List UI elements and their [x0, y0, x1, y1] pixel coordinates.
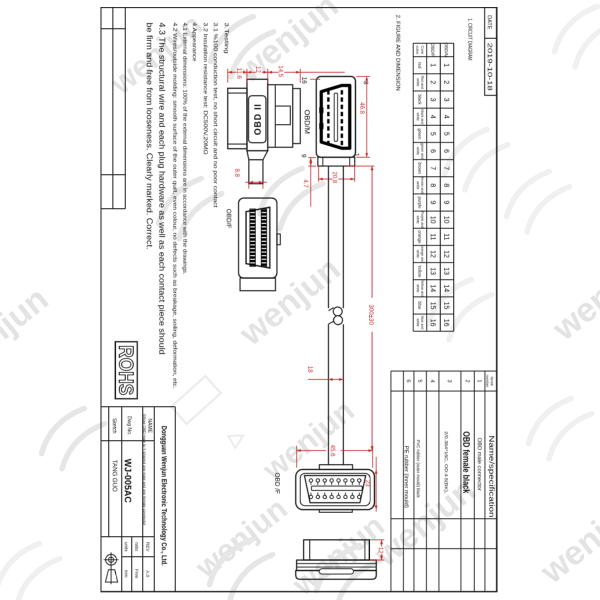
svg-text:OBD/F: OBD/F	[430, 43, 435, 57]
svg-text:1. CIRCUIT DIAGRAM: 1. CIRCUIT DIAGRAM	[466, 19, 472, 61]
svg-text:TANG GUO: TANG GUO	[110, 460, 116, 492]
svg-text:Dongguan Wenjun Electronic Tec: Dongguan Wenjun Electronic Technology Co…	[160, 426, 169, 566]
svg-text:Yellow and: Yellow and	[420, 280, 424, 297]
svg-text:13: 13	[429, 268, 436, 276]
svg-text:wenjun: wenjun	[545, 245, 600, 349]
svg-text:Sketch: Sketch	[111, 418, 117, 434]
svg-text:1: 1	[442, 64, 449, 68]
svg-text:orange: orange	[417, 230, 422, 244]
svg-text:3: 3	[442, 98, 449, 102]
svg-text:5: 5	[416, 380, 422, 383]
svg-text:white: white	[416, 319, 420, 327]
svg-text:8.8: 8.8	[233, 169, 239, 178]
svg-text:OBD/M: OBD/M	[303, 110, 312, 134]
svg-text:NAME: NAME	[146, 419, 152, 434]
svg-text:15: 15	[429, 302, 436, 310]
svg-text:300±30: 300±30	[367, 305, 374, 326]
svg-text:Purple and: Purple and	[420, 211, 424, 228]
svg-text:6: 6	[429, 149, 436, 153]
svg-text:ROHS: ROHS	[114, 346, 136, 396]
svg-text:9: 9	[300, 154, 307, 158]
svg-text:blue: blue	[417, 302, 422, 311]
svg-text:5: 5	[429, 132, 436, 136]
svg-text:20.8: 20.8	[330, 172, 336, 184]
svg-text:PE rubber (inner mould): PE rubber (inner mould)	[403, 446, 409, 508]
svg-text:orange and: orange and	[420, 245, 424, 263]
svg-text:4: 4	[428, 380, 434, 383]
svg-text:green: green	[417, 129, 422, 141]
svg-text:8: 8	[442, 184, 449, 188]
svg-text:red: red	[417, 62, 422, 69]
svg-text:14: 14	[442, 285, 449, 293]
svg-text:15: 15	[442, 302, 449, 310]
svg-text:5: 5	[442, 132, 449, 136]
svg-text:10: 10	[429, 216, 436, 224]
svg-text:4: 4	[429, 115, 436, 119]
svg-text:OBD female black: OBD female black	[461, 432, 471, 495]
svg-text:OBD /F: OBD /F	[273, 473, 280, 494]
svg-text:white: white	[416, 182, 420, 190]
svg-text:color: color	[415, 46, 420, 55]
svg-text:3.2 Insulation resistance test: 3.2 Insulation resistance test: DC500V,2…	[202, 23, 208, 155]
svg-text:1: 1	[475, 380, 481, 383]
svg-text:ratio: ratio	[134, 543, 139, 552]
svg-text:DATE: DATE	[486, 15, 492, 30]
svg-text:wenjun: wenjun	[0, 280, 56, 384]
svg-text:12: 12	[442, 250, 449, 258]
svg-text:Serial: Serial	[490, 377, 494, 387]
svg-text:12: 12	[376, 547, 382, 554]
svg-text:PVC rubber (outer mould) black: PVC rubber (outer mould) black	[416, 440, 421, 499]
svg-text:Core: Core	[420, 46, 425, 55]
svg-text:purple: purple	[417, 197, 422, 210]
svg-text:16: 16	[429, 319, 436, 327]
svg-text:wenjun: wenjun	[533, 488, 600, 592]
svg-text:white: white	[416, 79, 420, 87]
svg-text:units: units	[124, 542, 129, 552]
svg-text:mm: mm	[124, 570, 129, 578]
svg-text:9: 9	[429, 201, 436, 205]
svg-text:3.1 %100 conduction test, no s: 3.1 %100 conduction test, no short circu…	[212, 23, 218, 209]
svg-text:green and: green and	[420, 143, 424, 159]
svg-text:white: white	[416, 250, 420, 258]
svg-text:2/0.364*16C, OD:4.5(BK),: 2/0.364*16C, OD:4.5(BK),	[444, 432, 449, 494]
svg-text:6: 6	[442, 149, 449, 153]
svg-text:REV: REV	[145, 542, 150, 552]
svg-text:OBD/F: OBD/F	[225, 209, 232, 229]
svg-text:8: 8	[362, 81, 369, 85]
svg-text:4.1 External dimensions: 100%: 4.1 External dimensions: 100% of the ext…	[181, 23, 187, 275]
svg-text:A.0: A.0	[145, 571, 150, 578]
svg-text:OBD/M: OBD/M	[444, 43, 449, 58]
svg-text:7: 7	[442, 166, 449, 170]
svg-text:18: 18	[306, 366, 312, 373]
svg-text:4.Appearance: 4.Appearance	[191, 23, 197, 62]
svg-text:blue and: blue and	[420, 316, 424, 329]
svg-text:3.Testing: 3.Testing	[223, 23, 229, 54]
svg-text:white: white	[416, 284, 420, 292]
svg-text:11: 11	[429, 233, 436, 240]
svg-text:7: 7	[429, 166, 436, 170]
svg-text:2: 2	[442, 81, 449, 85]
svg-text:Dwg No.: Dwg No.	[126, 416, 132, 435]
svg-text:13: 13	[442, 268, 449, 276]
svg-text:16: 16	[300, 77, 307, 85]
svg-text:2: 2	[463, 380, 469, 383]
svg-text:2019-10-18: 2019-10-18	[486, 43, 493, 92]
svg-text:12: 12	[254, 66, 260, 73]
svg-text:black: black	[417, 95, 422, 106]
svg-text:Red and: Red and	[420, 76, 424, 89]
svg-text:3: 3	[429, 98, 436, 102]
svg-text:9: 9	[442, 201, 449, 205]
svg-text:2: 2	[429, 81, 436, 85]
svg-text:OBD male connector: OBD male connector	[475, 438, 481, 491]
svg-text:4.3 The structural wire and ea: 4.3 The structural wire and each plug ha…	[157, 23, 166, 355]
svg-text:4: 4	[442, 115, 449, 119]
svg-text:Name/specification: Name/specification	[487, 436, 494, 518]
svg-text:46.8: 46.8	[358, 103, 364, 115]
svg-text:2. FIGURE AND DIMENSION: 2. FIGURE AND DIMENSION	[394, 15, 400, 91]
svg-text:4.7: 4.7	[301, 180, 307, 189]
svg-text:Elbow OBD male to Y-shaped one: Elbow OBD male to Y-shaped one male and …	[142, 415, 146, 527]
svg-text:Free: Free	[134, 569, 139, 579]
svg-text:11: 11	[442, 233, 449, 240]
svg-text:OBD II: OBD II	[253, 104, 263, 136]
svg-text:10: 10	[442, 216, 449, 224]
svg-text:23: 23	[364, 480, 370, 487]
svg-text:6: 6	[404, 380, 410, 383]
svg-text:8: 8	[429, 184, 436, 188]
svg-text:white: white	[416, 147, 420, 155]
svg-text:WJ-005AC: WJ-005AC	[121, 459, 132, 503]
svg-text:45.6: 45.6	[328, 445, 334, 457]
svg-text:white: white	[416, 216, 420, 224]
svg-text:Yellow: Yellow	[417, 265, 422, 278]
svg-text:black and: black and	[420, 109, 424, 124]
svg-text:16: 16	[442, 319, 449, 327]
svg-text:number: number	[485, 375, 489, 388]
svg-text:14.5: 14.5	[277, 66, 283, 78]
svg-text:white: white	[416, 113, 420, 121]
svg-text:1: 1	[429, 64, 436, 68]
svg-text:12: 12	[429, 250, 436, 258]
svg-text:4.2 Wires/outside molding: smo: 4.2 Wires/outside molding: smooth surfac…	[171, 23, 177, 389]
svg-text:3: 3	[446, 380, 452, 383]
svg-text:brown: brown	[417, 163, 422, 175]
svg-text:be firm and free from loosenes: be firm and free from looseness. Clearly…	[145, 23, 154, 250]
svg-text:11.6: 11.6	[235, 68, 241, 80]
svg-text:14: 14	[429, 285, 436, 293]
svg-text:brown and: brown and	[420, 177, 424, 193]
